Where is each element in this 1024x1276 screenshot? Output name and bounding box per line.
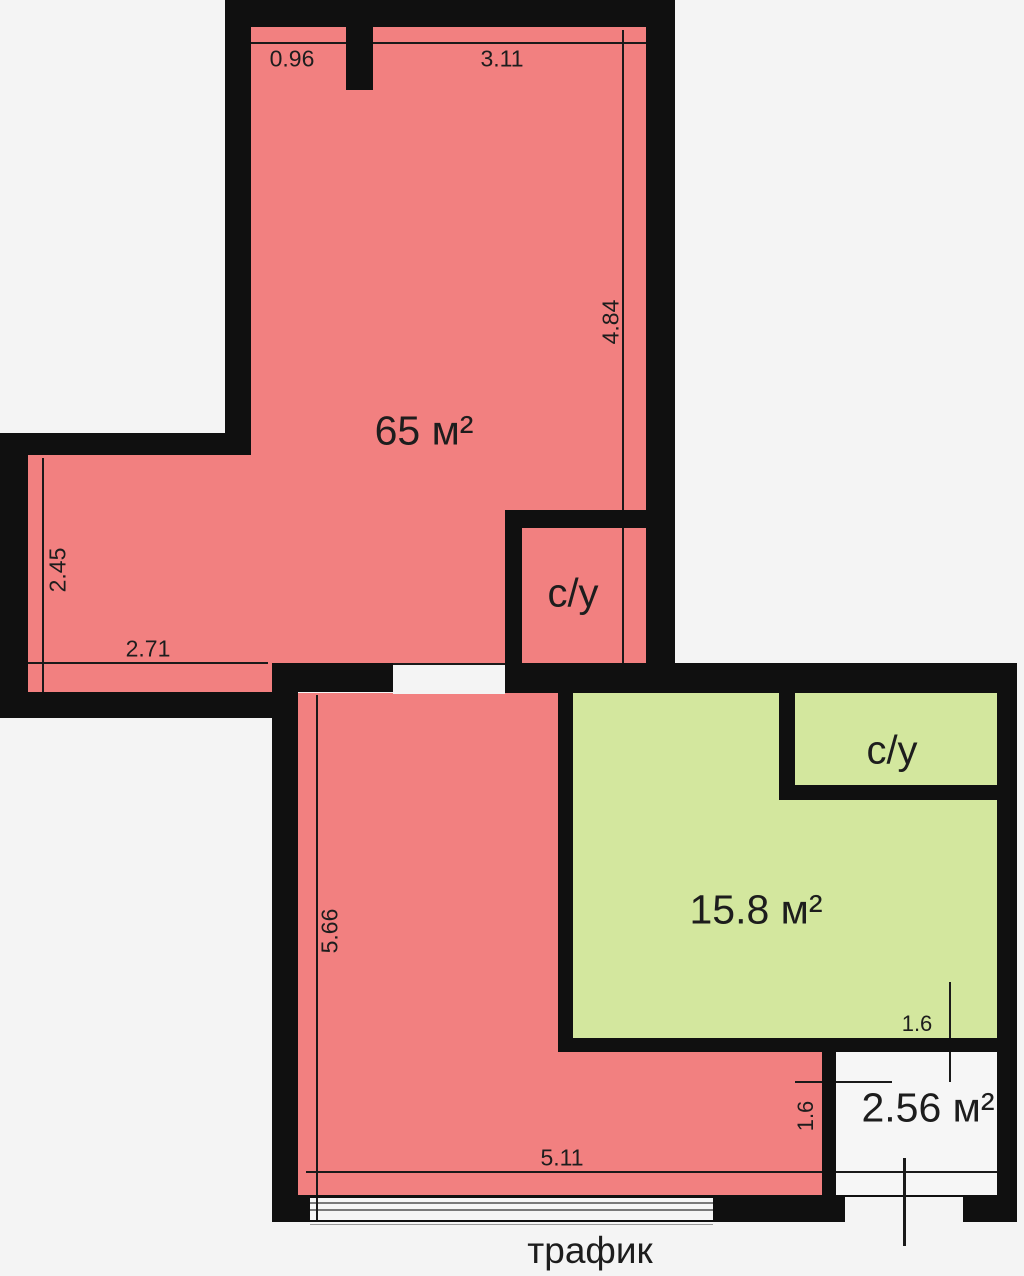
dimension-label-top-right: 3.11 [480,46,523,73]
wall-lower-top [505,663,1017,693]
floor-plan: 0.96 3.11 4.84 2.45 2.71 5.66 5.11 1.6 1… [0,0,1024,1276]
dimension-line-main-right [622,30,624,663]
wall-left-lower [272,692,298,1222]
wall-bathroom-right-bottom [779,785,1017,800]
wall-corridor-bottom [272,663,393,692]
wall-bottom-left-wing [0,692,272,718]
entrance-axis-line [903,1158,906,1246]
dimension-line-lower-left-through-window [316,1198,318,1220]
wall-left-mid [0,455,28,718]
dimension-label-hall-width: 1.6 [902,1011,933,1037]
dimension-line-hall-width [949,982,951,1082]
dimension-label-lower-bottom: 5.11 [540,1145,583,1172]
dimension-label-main-left: 2.45 [45,548,72,593]
dimension-line-hall-height [795,1081,892,1083]
wall-bathroom-top-vertical [505,510,522,663]
dimension-label-top-left: 0.96 [270,46,315,73]
window-bottom-glass [310,1198,713,1220]
wall-step-left [0,433,251,455]
wall-right-upper [646,0,675,692]
room-bathroom-right-label: с/у [866,729,917,774]
room-living-area-label: 15.8 м² [689,887,822,934]
wall-bathroom-right-vertical [779,693,795,800]
wall-red-green-divider [558,693,573,1038]
dimension-label-main-right: 4.84 [598,300,625,345]
wall-hall-left [822,1052,836,1196]
dimension-line-top [251,42,672,44]
window-glass-line [310,1202,713,1204]
room-lower-fill-bottom [298,1052,822,1195]
wall-living-bottom [558,1038,1017,1052]
room-hall-area-label: 2.56 м² [861,1085,994,1132]
room-bathroom-top-label: с/у [547,572,598,617]
dimension-label-main-bottom: 2.71 [126,636,171,663]
room-main-area-label: 65 м² [375,408,474,455]
traffic-label: трафик [527,1230,652,1272]
wall-right-lower [997,663,1017,1222]
window-glass-line [310,1209,713,1211]
dimension-label-lower-left: 5.66 [317,909,344,954]
dimension-label-hall-height: 1.6 [793,1101,819,1132]
dimension-line-lower-left [316,695,318,1222]
wall-bathroom-top-horizontal [505,510,660,528]
wall-notch-top [346,27,373,90]
wall-left-upper [225,0,251,433]
passage-opening [393,663,505,694]
wall-top [225,0,675,27]
